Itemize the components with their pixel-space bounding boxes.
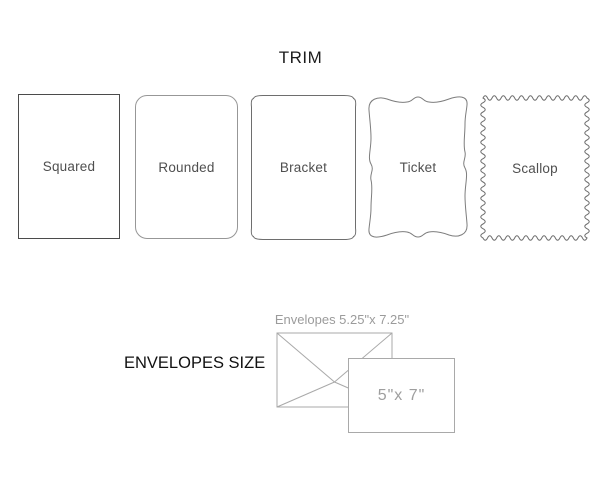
trim-shape-label: Bracket [250,94,357,241]
trim-shape-squared: Squared [18,94,120,239]
trim-and-envelope-diagram: TRIM Squared Rounded Bracket Ticket Scal… [0,0,601,501]
trim-shape-rounded: Rounded [135,95,238,239]
trim-shape-label: Scallop [480,95,590,241]
trim-shape-label: Rounded [136,96,237,238]
trim-shape-label: Squared [19,95,119,238]
envelope-size-caption: Envelopes 5.25"x 7.25" [262,312,422,327]
trim-shape-label: Ticket [363,92,473,242]
card-5x7: 5"x 7" [348,358,455,433]
trim-shape-ticket: Ticket [363,92,473,242]
trim-section-title: TRIM [0,48,601,68]
trim-shape-bracket: Bracket [250,94,357,241]
trim-shape-scallop: Scallop [480,95,590,241]
card-size-label: 5"x 7" [378,387,426,405]
envelopes-size-heading: ENVELOPES SIZE [124,354,254,373]
